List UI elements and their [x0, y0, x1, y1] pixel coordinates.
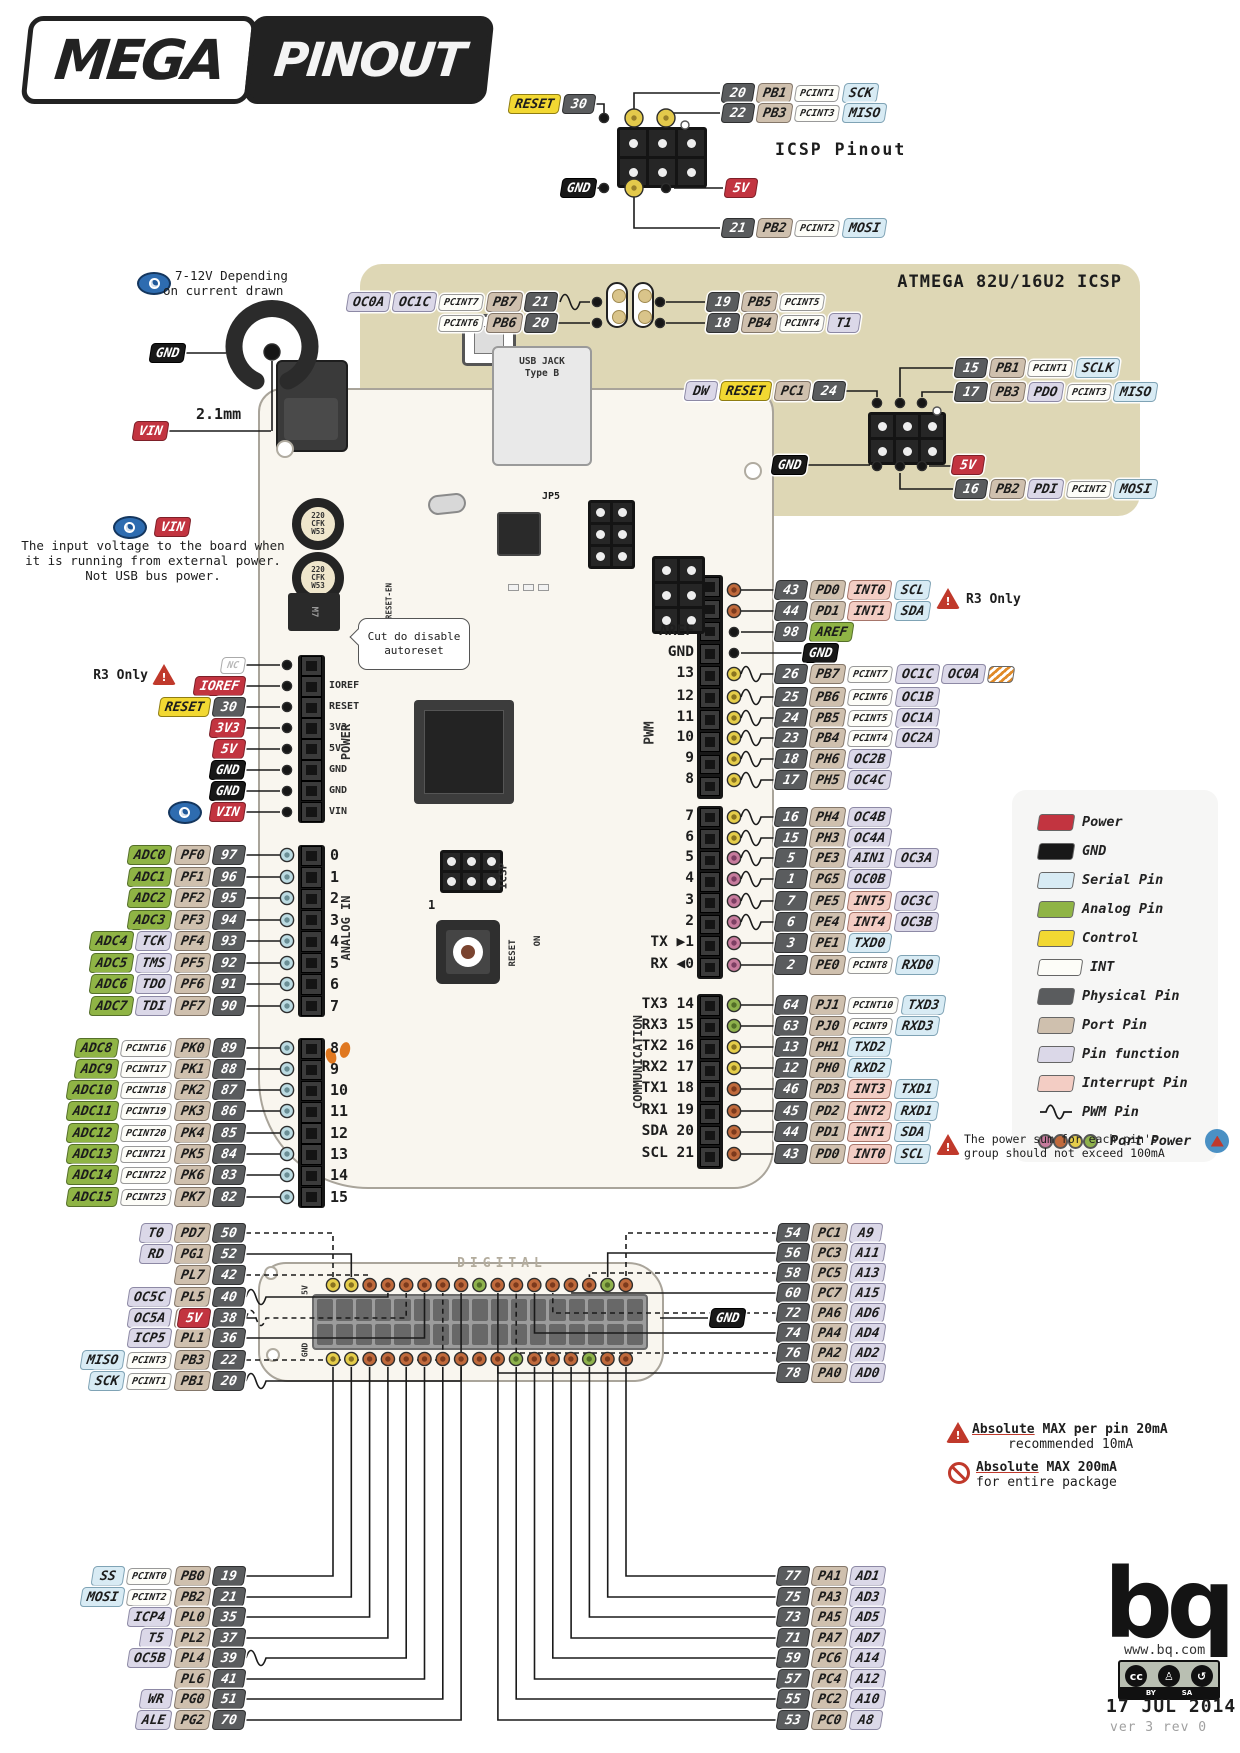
pin-row-dig-lower-left: OC5BPL439	[128, 1647, 245, 1669]
pin-badge-3V3: 3V3	[208, 718, 247, 738]
legend-label: INT	[1090, 959, 1114, 975]
pin-badge-PB5: PB5	[808, 708, 847, 728]
pin-badge-76: 76	[775, 1343, 810, 1363]
pin-badge-A12: A12	[849, 1669, 888, 1689]
pin-row-right-main: 16PH4OC4B	[775, 806, 892, 828]
legend-label: GND	[1082, 843, 1106, 859]
pin-row-analog2-left: ADC10PCINT18PK287	[67, 1079, 245, 1101]
pin-badge-21: 21	[211, 1587, 246, 1607]
pin-badge-ADC8: ADC8	[74, 1038, 120, 1058]
board-label-jp5: JP5	[542, 491, 560, 502]
pin-badge-OC0B: OC0B	[847, 869, 893, 889]
pin-badge-A13: A13	[849, 1263, 888, 1283]
pin-badge-24: 24	[773, 708, 808, 728]
connector-cell	[356, 1324, 372, 1346]
connector-cell	[394, 1324, 410, 1346]
legend-item-ser: Serial Pin	[1038, 870, 1163, 890]
pin-row-analog1-left: ADC5TMSPF592	[90, 952, 245, 974]
board-analog-digit: 1	[330, 868, 339, 886]
legend-label: Power	[1082, 814, 1123, 830]
pin-badge-PD0: PD0	[808, 580, 847, 600]
pin-badge-83: 83	[211, 1165, 246, 1185]
pin-header-strip	[298, 1038, 325, 1208]
pin-row-dig-lower-right: 59PC6A14	[777, 1647, 886, 1669]
pin-badge-A9: A9	[849, 1223, 884, 1243]
pin-badge-12: 12	[773, 1058, 808, 1078]
pin-badge-PB0: PB0	[173, 1566, 212, 1586]
capacitor-1: 220 CFK W53	[292, 498, 344, 550]
pin-badge-PK3: PK3	[173, 1101, 212, 1121]
pin-badge-PCINT6: PCINT6	[438, 315, 485, 332]
cc-by-icon: ♙	[1158, 1665, 1180, 1687]
board-pin-label: SCL 21	[594, 1145, 694, 1161]
pin-badge-OC5C: OC5C	[127, 1287, 173, 1307]
pin-badge-PE5: PE5	[808, 891, 847, 911]
pin-badge-TDI: TDI	[134, 996, 173, 1016]
pin-badge-INT1: INT1	[847, 601, 893, 621]
board-pin-label: RX1 19	[594, 1102, 694, 1118]
pin-row-bottom-gnd: GND	[710, 1307, 745, 1329]
pin-badge-PF4: PF4	[173, 931, 212, 951]
pin-row-u2-left: GND	[772, 454, 807, 476]
pin-badge-OC5A: OC5A	[127, 1308, 173, 1328]
pin-row-right-main: 98AREF	[775, 621, 853, 643]
pin-badge-PH5: PH5	[808, 770, 847, 790]
pin-badge-73: 73	[775, 1607, 810, 1627]
pin-badge-PB1: PB1	[988, 358, 1027, 378]
pin-badge-ADC7: ADC7	[88, 996, 134, 1016]
legend-item-gnd: GND	[1038, 841, 1106, 861]
pin-badge-PCINT10: PCINT10	[847, 997, 900, 1014]
pin-badge-ADC0: ADC0	[127, 845, 173, 865]
reset-button-core[interactable]	[461, 945, 475, 959]
isp-pad-column	[632, 282, 654, 328]
board-pin-label: RX3 15	[594, 1017, 694, 1033]
pin-badge-PK4: PK4	[173, 1123, 212, 1143]
led-tx	[523, 584, 534, 591]
connector-cell	[433, 1299, 449, 1321]
pin-row-bottom-power: 5V	[178, 1307, 210, 1329]
pin-badge-OC2B: OC2B	[847, 749, 893, 769]
pin-row-right-main: 24PB5PCINT5OC1A	[775, 707, 939, 729]
pin-row-analog1-left: ADC1PF196	[128, 866, 245, 888]
pin-badge-PE0: PE0	[808, 955, 847, 975]
pin-badge-INT0: INT0	[847, 1144, 893, 1164]
pin-badge-26: 26	[773, 664, 808, 684]
warning-triangle-icon: !	[936, 1134, 960, 1155]
board-pin-label: 8	[594, 771, 694, 787]
port-power-warning-icon	[1205, 1129, 1229, 1153]
pin-badge-A14: A14	[849, 1648, 888, 1668]
pin-badge-PE3: PE3	[808, 848, 847, 868]
pin-badge-PA5: PA5	[810, 1607, 849, 1627]
pin-badge-RESET: RESET	[157, 697, 211, 717]
pin-badge-PC1: PC1	[773, 381, 812, 401]
pin-row-u2-right: 15PB1PCINT1SCLK	[955, 357, 1119, 379]
eye-icon	[113, 516, 147, 539]
board-analog-digit: 6	[330, 975, 339, 993]
pin-badge-40: 40	[211, 1287, 246, 1307]
pin-badge-PF5: PF5	[173, 953, 212, 973]
pin-badge-SCLK: SCLK	[1074, 358, 1120, 378]
maxpkg-rest: MAX 200mA	[1039, 1460, 1117, 1475]
pin-badge-53: 53	[775, 1710, 810, 1730]
connector-cell	[452, 1299, 468, 1321]
pin-row-right-main: 2PE0PCINT8RXD0	[775, 954, 939, 976]
pin-badge-PC5: PC5	[810, 1263, 849, 1283]
board-pin-label: SDA 20	[594, 1123, 694, 1139]
pin-badge-PH1: PH1	[808, 1037, 847, 1057]
warning-triangle-icon: !	[946, 1422, 970, 1443]
pin-badge-97: 97	[211, 845, 246, 865]
pin-row-dig-upper-left: OC5CPL540	[128, 1286, 245, 1308]
pin-row-analog2-left: ADC11PCINT19PK386	[67, 1100, 245, 1122]
led-rx	[538, 584, 549, 591]
pin-badge-PB4: PB4	[740, 313, 779, 333]
pin-badge-PCINT8: PCINT8	[847, 957, 894, 974]
pin-badge-PCINT4: PCINT4	[779, 315, 826, 332]
pin-row-analog1-left: ADC3PF394	[128, 909, 245, 931]
pin-badge-PF3: PF3	[173, 910, 212, 930]
pin-badge-39: 39	[211, 1648, 246, 1668]
autoreset-note-line: Cut do disable	[368, 630, 461, 644]
pin-row-right-main: 43PD0INT0SCL	[775, 1143, 930, 1165]
pin-row-dig-upper-right: 60PC7A15	[777, 1282, 886, 1304]
pin-row-right-main: 25PB6PCINT6OC1B	[775, 686, 939, 708]
bq-logo: bq	[1104, 1556, 1229, 1652]
pin-row-analog2-left: ADC13PCINT21PK584	[67, 1143, 245, 1165]
pin-badge-25: 25	[773, 687, 808, 707]
chip-16u2	[497, 512, 541, 556]
pin-badge-7: 7	[773, 891, 808, 911]
pin-row-u2-left: PCINT6PB620	[439, 312, 557, 334]
pin-badge-VIN: VIN	[208, 802, 247, 822]
pin-row-right-main: 63PJ0PCINT9RXD3	[775, 1015, 939, 1037]
pin-badge-PG5: PG5	[808, 869, 847, 889]
pin-row-dig-lower-left: SSPCINT0PB019	[92, 1565, 245, 1587]
pin-badge-55: 55	[775, 1689, 810, 1709]
board-label-digital: DIGITAL	[402, 1256, 602, 1271]
pin-row-right-main: 64PJ1PCINT10TXD3	[775, 994, 945, 1016]
pin-badge-64: 64	[773, 995, 808, 1015]
pin-badge-78: 78	[775, 1363, 810, 1383]
connector-cell	[491, 1299, 507, 1321]
pin-badge-22: 22	[720, 103, 755, 123]
pin-row-dig-lower-left: ALEPG270	[136, 1709, 245, 1731]
pin-row-right-main: 3PE1TXD0	[775, 932, 892, 954]
pin-badge-PCINT9: PCINT9	[847, 1018, 894, 1035]
icsp-header	[617, 127, 707, 188]
pin-badge-PK2: PK2	[173, 1080, 212, 1100]
pin-row-right-main: GND	[803, 642, 838, 664]
pin-row-dig-upper-left: MISOPCINT3PB322	[81, 1349, 245, 1371]
pin-badge-PCINT23: PCINT23	[120, 1189, 173, 1206]
pin-badge-17: 17	[953, 382, 988, 402]
board-label-gnd-side: GND	[301, 1343, 310, 1357]
pin-badge-20: 20	[720, 83, 755, 103]
pin-badge-PA3: PA3	[810, 1587, 849, 1607]
pin-badge-PC7: PC7	[810, 1283, 849, 1303]
eye-icon	[168, 801, 202, 824]
pin-badge-PE1: PE1	[808, 933, 847, 953]
pin-badge-SDA: SDA	[893, 601, 932, 621]
pin-badge-ALE: ALE	[134, 1710, 173, 1730]
pin-badge-PF1: PF1	[173, 867, 212, 887]
mounting-hole	[266, 1348, 280, 1362]
pin-row-dig-lower-right: 57PC4A12	[777, 1668, 886, 1690]
pin-row-dig-lower-left: T5PL237	[140, 1627, 245, 1649]
pin-row-u2-left: DWRESETPC124	[685, 380, 845, 402]
board-label-icsp-pin1: 1	[428, 898, 435, 912]
board-pin-label: 7	[594, 808, 694, 824]
pin-badge-86: 86	[211, 1101, 246, 1121]
pin-badge-PB3: PB3	[988, 382, 1027, 402]
pin-badge-PCINT7: PCINT7	[438, 294, 485, 311]
pin-badge-PB4: PB4	[808, 728, 847, 748]
pin-row-power-left: IOREF	[194, 675, 245, 697]
pin-badge-44: 44	[773, 601, 808, 621]
pin-badge-PF6: PF6	[173, 974, 212, 994]
connector-cell	[317, 1324, 333, 1346]
pin-row-right-main: 12PH0RXD2	[775, 1057, 892, 1079]
pin-badge-GND: GND	[801, 643, 840, 663]
pin-badge-PJ0: PJ0	[808, 1016, 847, 1036]
pin-badge-PH0: PH0	[808, 1058, 847, 1078]
maxpin-warning-line1: Absolute MAX per pin 20mA	[972, 1422, 1168, 1437]
pin-badge-RXD2: RXD2	[847, 1058, 893, 1078]
r3-only-right-label: R3 Only	[966, 592, 1021, 607]
connector-cell	[607, 1324, 623, 1346]
pin-badge-PCINT22: PCINT22	[120, 1167, 173, 1184]
board-pin-label: 13	[594, 665, 694, 681]
pin-badge-ADC2: ADC2	[127, 888, 173, 908]
pin-badge-AD6: AD6	[849, 1303, 888, 1323]
pin-badge-PCINT1: PCINT1	[794, 85, 841, 102]
pin-badge-PD0: PD0	[808, 1144, 847, 1164]
pin-row-dig-lower-right: 73PA5AD5	[777, 1606, 886, 1628]
board-analog-digit: 0	[330, 846, 339, 864]
pin-badge-PK6: PK6	[173, 1165, 212, 1185]
pin-badge-96: 96	[211, 867, 246, 887]
pin-badge-23: 23	[773, 728, 808, 748]
pin-row-icsp-top-right: 21PB2PCINT2MOSI	[722, 217, 886, 239]
pin-badge-AD7: AD7	[849, 1628, 888, 1648]
connector-cell	[569, 1299, 585, 1321]
board-analog-digit: 10	[330, 1081, 348, 1099]
pin-badge-PK1: PK1	[173, 1059, 212, 1079]
board-label-icsp: ICSP	[497, 863, 510, 890]
board-pin-label: 3	[594, 892, 694, 908]
autoreset-note: Cut do disable autoreset	[358, 618, 470, 670]
pin-badge-PA0: PA0	[810, 1363, 849, 1383]
pin-row-right-main: 43PD0INT0SCL	[775, 579, 930, 601]
pin-badge-PC4: PC4	[810, 1669, 849, 1689]
pin-badge-94: 94	[211, 910, 246, 930]
atmega-panel-title: ATMEGA 82U/16U2 ICSP	[760, 272, 1122, 292]
pin-row-dig-lower-left: MOSIPCINT2PB221	[81, 1586, 245, 1608]
pin-badge-PB5: PB5	[740, 292, 779, 312]
pin-badge-PE4: PE4	[808, 912, 847, 932]
board-pin-label: TX3 14	[594, 996, 694, 1012]
legend-label: Port Pin	[1082, 1017, 1147, 1033]
pin-row-analog1-left: ADC0PF097	[128, 844, 245, 866]
pin-badge-PCINT20: PCINT20	[120, 1125, 173, 1142]
pin-badge-SS: SS	[91, 1566, 126, 1586]
pin-badge-IOREF: IOREF	[192, 676, 246, 696]
connector-cell	[627, 1324, 643, 1346]
pin-badge-ICP4: ICP4	[127, 1607, 173, 1627]
connector-cell	[414, 1299, 430, 1321]
pin-badge-PH3: PH3	[808, 828, 847, 848]
pin-badge-SDA: SDA	[893, 1122, 932, 1142]
usb-jack: USB JACK Type B	[492, 346, 592, 466]
pin-row-power-left: NC	[221, 654, 245, 676]
pin-badge-51: 51	[211, 1689, 246, 1709]
pin-badge-90: 90	[211, 996, 246, 1016]
pin-badge-ADC4: ADC4	[88, 931, 134, 951]
pin-row-dig-lower-right: 71PA7AD7	[777, 1627, 886, 1649]
pin-badge-PD1: PD1	[808, 601, 847, 621]
pin-badge-RXD1: RXD1	[893, 1101, 939, 1121]
underlined-word: Absolute	[972, 1422, 1035, 1437]
pin-row-right-main: 44PD1INT1SDA	[775, 600, 930, 622]
pin-badge-PC2: PC2	[810, 1689, 849, 1709]
pin-badge-GND: GND	[708, 1308, 747, 1328]
pin-badge-PD7: PD7	[173, 1223, 212, 1243]
pin-badge-45: 45	[773, 1101, 808, 1121]
legend-label: Analog Pin	[1082, 901, 1163, 917]
board-analog-digit: 8	[330, 1039, 339, 1057]
pin-header-strip	[298, 845, 325, 1017]
connector-cell	[394, 1299, 410, 1321]
pin-row-dig-upper-left: PL742	[175, 1264, 245, 1286]
powersum-warning-line1: The power sum for each pin's	[964, 1132, 1158, 1146]
logo-pinout: PINOUT	[243, 16, 494, 104]
pin-row-icsp-top-right: 20PB1PCINT1SCK	[722, 82, 878, 104]
pin-badge-88: 88	[211, 1059, 246, 1079]
pin-row-dig-upper-right: 56PC3A11	[777, 1242, 886, 1264]
pin-badge-ADC1: ADC1	[127, 867, 173, 887]
pin-badge-56: 56	[775, 1243, 810, 1263]
pin-row-power-left: GND	[210, 780, 245, 802]
pin-badge-PF2: PF2	[173, 888, 212, 908]
pin-badge-AREF: AREF	[808, 622, 854, 642]
pin-header-strip	[697, 806, 723, 979]
pin-badge-PCINT3: PCINT3	[794, 105, 841, 122]
pin-badge-TXD0: TXD0	[847, 933, 893, 953]
pin-badge-PL4: PL4	[173, 1648, 212, 1668]
pin-badge-MOSI: MOSI	[1113, 479, 1159, 499]
pin-row-right-main: 26PB7PCINT7OC1COC0A	[775, 663, 1014, 685]
pin-badge-ICP5: ICP5	[127, 1328, 173, 1348]
board-analog-digit: 4	[330, 932, 339, 950]
pin-badge-5V: 5V	[950, 455, 985, 475]
mounting-hole	[744, 462, 762, 480]
pin-badge-SCL: SCL	[893, 1144, 932, 1164]
pin-badge-SCK: SCK	[87, 1371, 126, 1391]
board-pin-label: RX ◀0	[594, 956, 694, 972]
board-analog-digit: 7	[330, 997, 339, 1015]
pin-badge-PG1: PG1	[173, 1244, 212, 1264]
pin-badge-19: 19	[211, 1566, 246, 1586]
pin-badge-PF0: PF0	[173, 845, 212, 865]
pin-badge-OC1C: OC1C	[391, 292, 437, 312]
pin-badge-92: 92	[211, 953, 246, 973]
pin-badge-TCK: TCK	[134, 931, 173, 951]
board-analog-digit: 11	[330, 1102, 348, 1120]
pin-badge-20: 20	[523, 313, 558, 333]
pin-row-power-left: 3V3	[210, 717, 245, 739]
board-pin-label: 4	[594, 870, 694, 886]
digital-header-connector	[312, 1294, 648, 1350]
connector-cell	[452, 1324, 468, 1346]
pin-row-u2-right: 18PB4PCINT4T1	[707, 312, 860, 334]
pin-badge-PB6: PB6	[485, 313, 524, 333]
pin-badge-OC5B: OC5B	[127, 1648, 173, 1668]
board-power-label: RESET	[329, 701, 359, 712]
plug-size-label: 2.1mm	[196, 405, 241, 423]
pin-row-power-left: RESET30	[159, 696, 245, 718]
pin-badge-PK5: PK5	[173, 1144, 212, 1164]
pin-row-right-main: 1PG5OC0B	[775, 868, 892, 890]
pin-badge-AD3: AD3	[849, 1587, 888, 1607]
pin-row-power-left: 5V	[213, 738, 245, 760]
version-label: ver 3 rev 0	[1110, 1720, 1207, 1735]
pin-row-right-main: 18PH6OC2B	[775, 748, 892, 770]
board-pin-label: 11	[594, 709, 694, 725]
pin-badge-PB3: PB3	[173, 1350, 212, 1370]
pin-row-right-main: 17PH5OC4C	[775, 769, 892, 791]
pin-badge-PCINT5: PCINT5	[847, 710, 894, 727]
pin-badge-ADC9: ADC9	[74, 1059, 120, 1079]
pin-badge-PB2: PB2	[755, 218, 794, 238]
pin-row-power-left: GND	[210, 759, 245, 781]
pin-badge-46: 46	[773, 1079, 808, 1099]
pin-badge-MOSI: MOSI	[841, 218, 887, 238]
pin-badge-93: 93	[211, 931, 246, 951]
pin-badge-21: 21	[720, 218, 755, 238]
pin-row-dig-upper-right: 78PA0AD0	[777, 1362, 886, 1384]
legend-item-pwr: Power	[1038, 812, 1123, 832]
connector-cell	[472, 1324, 488, 1346]
pin-badge-PB7: PB7	[808, 664, 847, 684]
warning-triangle-icon: !	[936, 588, 960, 609]
pin-badge-6: 6	[773, 912, 808, 932]
pin-badge-ADC13: ADC13	[66, 1144, 120, 1164]
pin-badge-GND: GND	[148, 343, 187, 363]
pin-badge-T0: T0	[138, 1223, 173, 1243]
cc-sa-icon: ↺	[1191, 1665, 1213, 1687]
board-analog-digit: 5	[330, 954, 339, 972]
bq-url[interactable]: www.bq.com	[1124, 1642, 1205, 1658]
pin-badge-PB1: PB1	[173, 1371, 212, 1391]
pin-badge-AD2: AD2	[849, 1343, 888, 1363]
cc-icon: cc	[1125, 1665, 1147, 1687]
maxpkg-warning-line2: for entire package	[976, 1475, 1117, 1490]
pin-row-dig-upper-right: 58PC5A13	[777, 1262, 886, 1284]
pin-badge-GND: GND	[770, 455, 809, 475]
pin-badge-PCINT21: PCINT21	[120, 1146, 173, 1163]
pin-badge-INT4: INT4	[847, 912, 893, 932]
board-pin-label: 10	[594, 729, 694, 745]
pin-badge-3: 3	[773, 933, 808, 953]
pin-badge-5V: 5V	[176, 1308, 211, 1328]
connector-cell	[414, 1324, 430, 1346]
pin-badge-22: 22	[211, 1350, 246, 1370]
pin-badge-20: 20	[211, 1371, 246, 1391]
pin-row-jack: VIN	[133, 420, 168, 442]
connector-cell	[356, 1299, 372, 1321]
